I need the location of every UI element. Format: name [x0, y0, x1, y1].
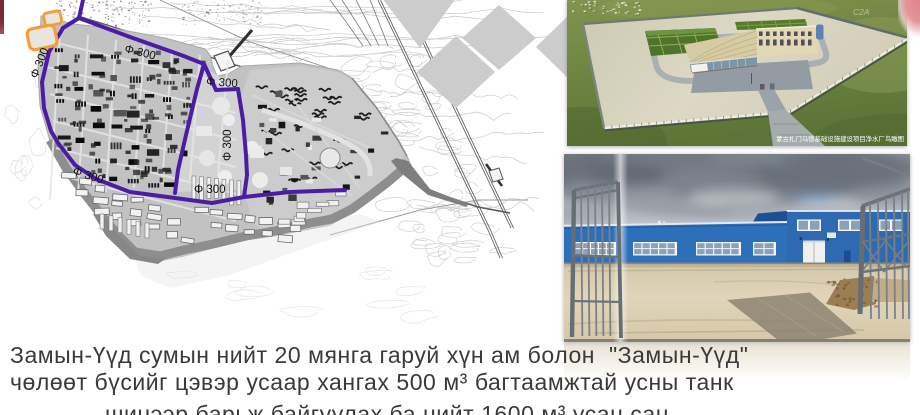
svg-text:Φ 300: Φ 300 — [206, 76, 238, 90]
svg-text:Φ 300: Φ 300 — [222, 129, 234, 161]
svg-text:Φ 300: Φ 300 — [194, 184, 226, 196]
svg-text:蒙古扎门乌德基础设施建设项目净水厂鸟瞰图: 蒙古扎门乌德基础设施建设项目净水厂鸟瞰图 — [776, 134, 904, 143]
svg-text:C2A: C2A — [853, 7, 870, 17]
